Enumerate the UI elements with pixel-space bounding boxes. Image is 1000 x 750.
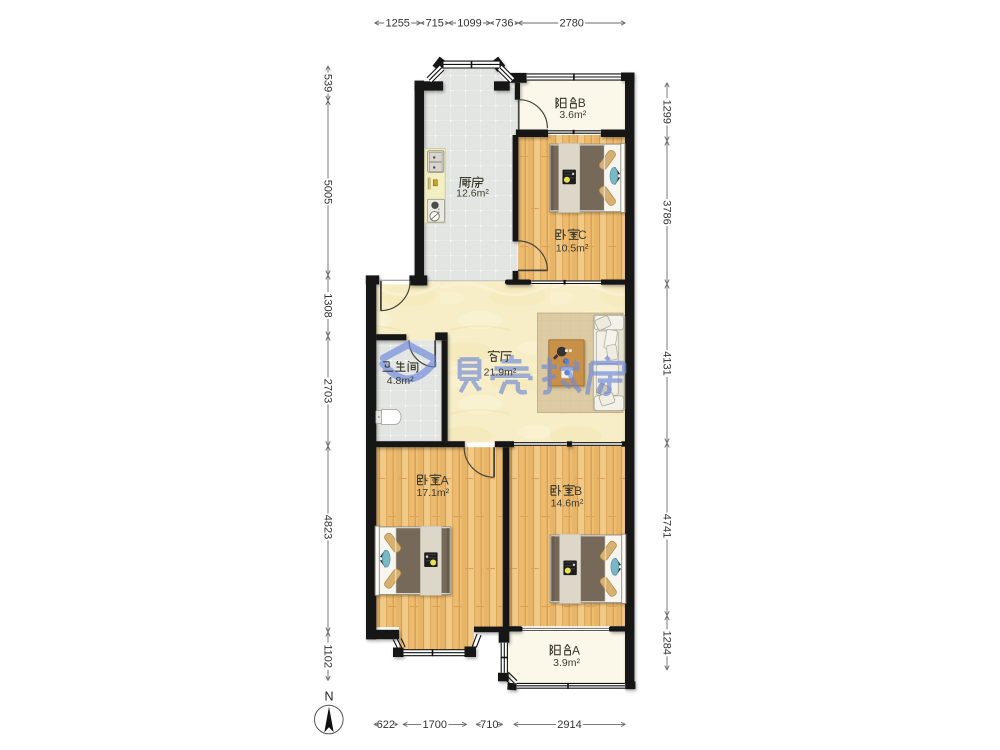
svg-text:C: C bbox=[578, 228, 587, 242]
svg-text:1299: 1299 bbox=[660, 100, 672, 124]
svg-text:4741: 4741 bbox=[660, 514, 672, 538]
svg-text:5005: 5005 bbox=[321, 180, 333, 204]
svg-text:4823: 4823 bbox=[321, 515, 333, 539]
svg-text:539: 539 bbox=[321, 74, 333, 92]
svg-text:A: A bbox=[441, 473, 449, 487]
svg-text:2703: 2703 bbox=[321, 379, 333, 403]
svg-text:21.9m²: 21.9m² bbox=[484, 367, 517, 379]
svg-text:1308: 1308 bbox=[321, 293, 333, 317]
svg-text:2780: 2780 bbox=[559, 18, 583, 30]
svg-text:1255: 1255 bbox=[385, 18, 409, 30]
svg-text:17.1m²: 17.1m² bbox=[416, 487, 449, 499]
svg-text:3.6m²: 3.6m² bbox=[559, 109, 586, 121]
svg-text:1102: 1102 bbox=[321, 644, 333, 668]
svg-text:2914: 2914 bbox=[557, 719, 581, 731]
svg-text:12.6m²: 12.6m² bbox=[456, 187, 489, 199]
svg-text:N: N bbox=[324, 689, 333, 703]
svg-text:622: 622 bbox=[377, 719, 395, 731]
svg-text:4131: 4131 bbox=[660, 351, 672, 375]
svg-text:B: B bbox=[574, 484, 582, 498]
svg-text:4.8m²: 4.8m² bbox=[387, 375, 414, 387]
svg-text:3786: 3786 bbox=[660, 200, 672, 224]
svg-text:14.6m²: 14.6m² bbox=[551, 497, 584, 509]
svg-text:715: 715 bbox=[426, 18, 444, 30]
svg-text:A: A bbox=[572, 643, 580, 657]
svg-text:1284: 1284 bbox=[660, 631, 672, 655]
svg-text:736: 736 bbox=[495, 18, 513, 30]
svg-text:10.5m²: 10.5m² bbox=[556, 242, 589, 254]
svg-text:3.9m²: 3.9m² bbox=[553, 657, 580, 669]
svg-text:1099: 1099 bbox=[457, 18, 481, 30]
svg-text:1700: 1700 bbox=[423, 719, 447, 731]
svg-text:B: B bbox=[578, 96, 586, 110]
svg-text:710: 710 bbox=[480, 719, 498, 731]
